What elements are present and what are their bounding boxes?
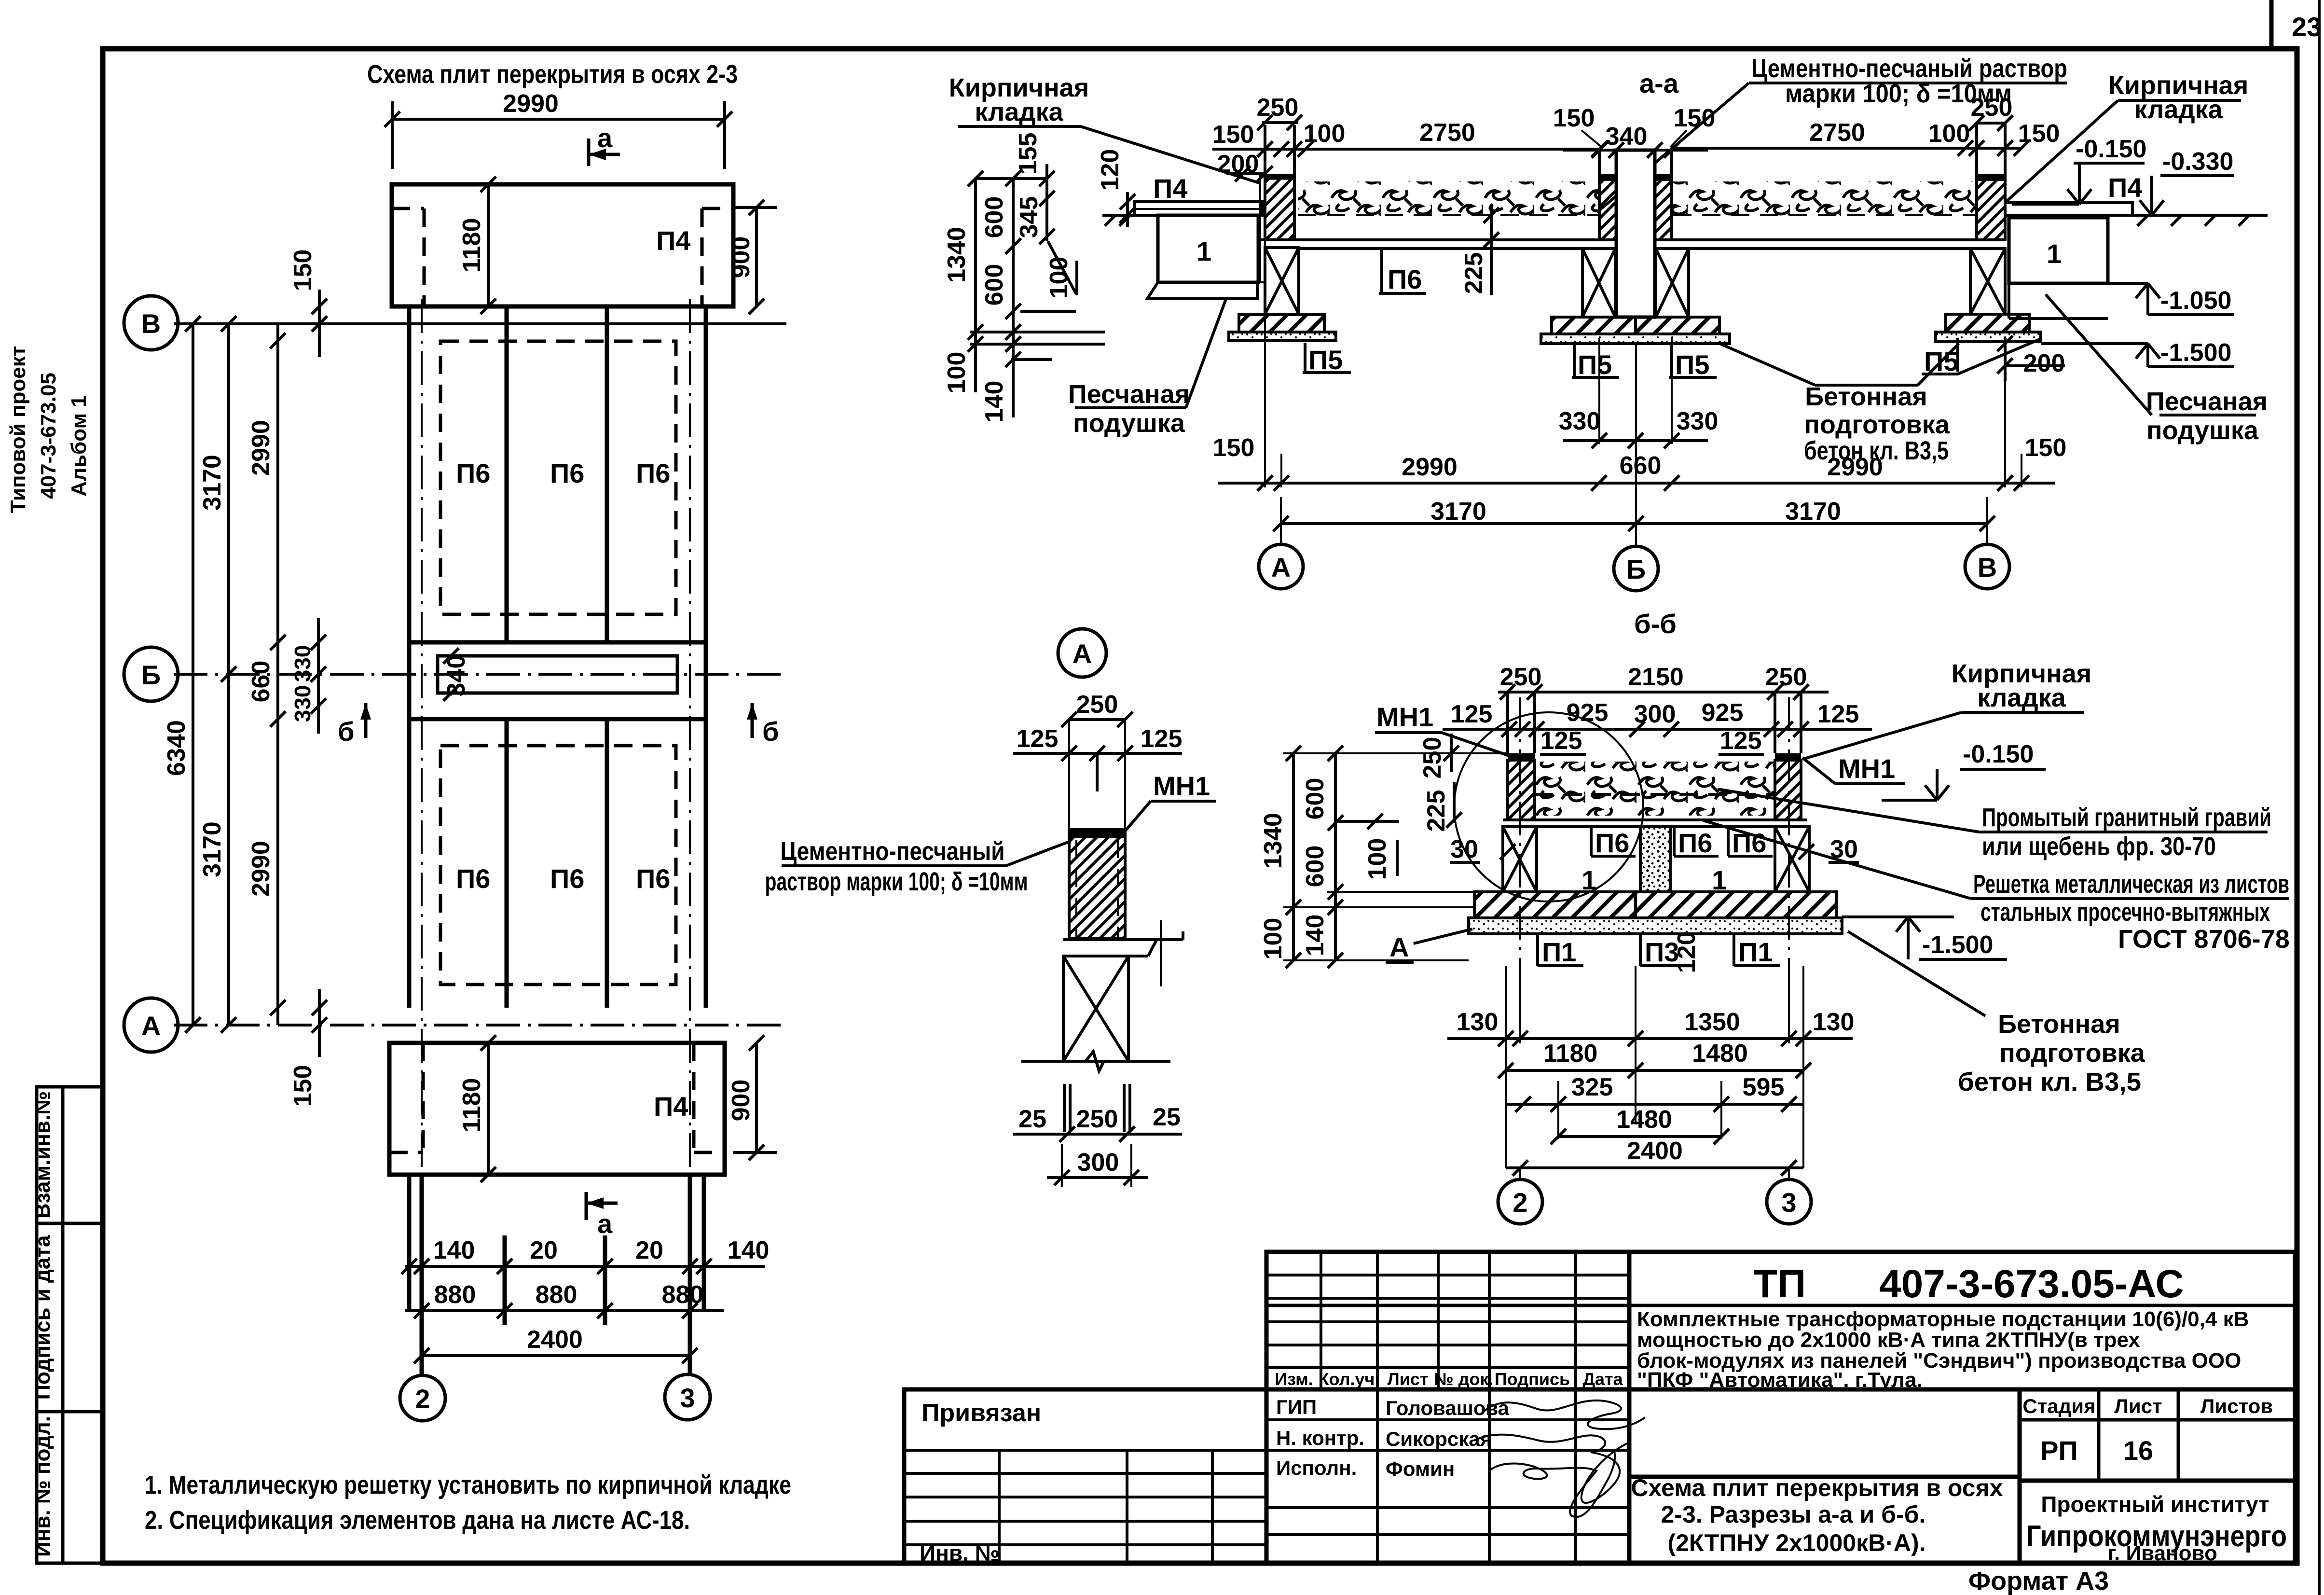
svg-text:Схема плит перекрытия в осях: Схема плит перекрытия в осях	[1631, 1474, 2003, 1501]
svg-text:Инв. № подл.: Инв. № подл.	[31, 1416, 55, 1557]
svg-text:ГИП: ГИП	[1276, 1396, 1317, 1418]
svg-text:900: 900	[727, 1080, 755, 1122]
svg-text:П6: П6	[1678, 828, 1712, 858]
svg-text:880: 880	[662, 1281, 704, 1309]
svg-text:1480: 1480	[1692, 1040, 1748, 1068]
svg-text:1180: 1180	[458, 218, 486, 273]
svg-text:подготовка: подготовка	[1804, 410, 1950, 439]
svg-text:23: 23	[2292, 12, 2322, 42]
svg-text:Цементно-песчаный: Цементно-песчаный	[781, 837, 1005, 866]
svg-text:2990: 2990	[1402, 453, 1458, 481]
svg-text:Взам.инв.№: Взам.инв.№	[31, 1091, 55, 1219]
svg-text:600: 600	[1301, 846, 1329, 888]
svg-text:Листов: Листов	[2200, 1395, 2273, 1417]
svg-text:а: а	[597, 1208, 613, 1239]
svg-text:2-3. Разрезы а-а и б-б.: 2-3. Разрезы а-а и б-б.	[1661, 1501, 1926, 1528]
svg-text:250: 250	[1257, 94, 1299, 122]
svg-text:2990: 2990	[247, 420, 275, 476]
svg-text:Схема плит перекрытия в осях 2: Схема плит перекрытия в осях 2-3	[367, 60, 738, 89]
svg-text:3170: 3170	[1430, 498, 1486, 526]
svg-text:140: 140	[433, 1236, 475, 1264]
svg-text:130: 130	[1813, 1008, 1855, 1036]
svg-text:П4: П4	[1153, 173, 1187, 204]
svg-text:МН1: МН1	[1153, 771, 1210, 801]
svg-text:подушка: подушка	[2146, 416, 2259, 445]
svg-text:А: А	[1389, 932, 1409, 962]
svg-text:250: 250	[1076, 691, 1118, 719]
svg-text:Решетка металлическая из листо: Решетка металлическая из листов	[1973, 870, 2289, 899]
svg-text:Проектный институт: Проектный институт	[2041, 1492, 2269, 1517]
svg-text:2400: 2400	[1627, 1137, 1683, 1165]
svg-text:30: 30	[1450, 835, 1478, 863]
svg-text:25: 25	[1018, 1105, 1046, 1133]
svg-text:-1.500: -1.500	[2160, 339, 2231, 367]
svg-text:Фомин: Фомин	[1386, 1457, 1455, 1480]
svg-text:600: 600	[980, 196, 1008, 238]
svg-text:П5: П5	[1308, 345, 1343, 375]
svg-text:325: 325	[1571, 1073, 1613, 1101]
svg-text:250: 250	[1076, 1105, 1118, 1133]
svg-text:подушка: подушка	[1073, 409, 1185, 438]
svg-text:МН1: МН1	[1376, 702, 1433, 732]
svg-text:250: 250	[1418, 737, 1446, 779]
svg-text:№ док.: № док.	[1434, 1369, 1494, 1389]
svg-text:1: 1	[2047, 238, 2062, 269]
svg-text:595: 595	[1743, 1073, 1785, 1101]
svg-text:А: А	[1271, 552, 1291, 583]
svg-text:6340: 6340	[163, 720, 191, 776]
svg-text:-0.150: -0.150	[2076, 135, 2146, 163]
svg-text:б-б: б-б	[1634, 609, 1677, 639]
svg-text:20: 20	[530, 1236, 558, 1264]
svg-text:П1: П1	[1738, 937, 1773, 967]
svg-text:-1.500: -1.500	[1922, 931, 1993, 959]
svg-text:140: 140	[1301, 915, 1329, 957]
svg-text:880: 880	[434, 1281, 476, 1309]
svg-text:330: 330	[290, 645, 315, 682]
svg-text:Головашова: Головашова	[1386, 1397, 1510, 1419]
svg-text:2990: 2990	[247, 841, 275, 897]
svg-text:а: а	[597, 123, 613, 153]
svg-text:А: А	[141, 1011, 161, 1041]
svg-text:330: 330	[290, 685, 315, 722]
svg-text:2400: 2400	[527, 1326, 583, 1354]
svg-text:1340: 1340	[943, 227, 971, 283]
svg-text:16: 16	[2123, 1435, 2153, 1466]
svg-text:Формат А3: Формат А3	[1968, 1567, 2109, 1595]
svg-text:150: 150	[289, 1065, 317, 1107]
svg-text:125: 125	[1540, 727, 1582, 755]
svg-text:ТП: ТП	[1753, 1262, 1806, 1306]
svg-text:П6: П6	[1388, 264, 1422, 294]
svg-text:330: 330	[1677, 407, 1719, 435]
svg-text:200: 200	[2023, 349, 2065, 377]
svg-text:Привязан: Привязан	[921, 1399, 1041, 1427]
svg-text:100: 100	[1045, 257, 1073, 299]
svg-text:250: 250	[1971, 94, 2013, 122]
svg-text:П5: П5	[1578, 349, 1612, 380]
svg-text:3170: 3170	[198, 455, 226, 511]
svg-text:П6: П6	[636, 458, 670, 488]
svg-text:стальных просечно-вытяжных: стальных просечно-вытяжных	[1980, 898, 2270, 927]
svg-text:Изм.: Изм.	[1275, 1369, 1313, 1389]
svg-text:1180: 1180	[458, 1078, 486, 1133]
svg-text:1350: 1350	[1684, 1008, 1740, 1036]
svg-text:П6: П6	[1595, 828, 1629, 858]
svg-text:П5: П5	[1675, 349, 1709, 380]
svg-text:бетон кл. В3,5: бетон кл. В3,5	[1958, 1068, 2141, 1096]
svg-text:660: 660	[247, 661, 275, 703]
svg-text:или щебень фр. 30-70: или щебень фр. 30-70	[1982, 832, 2216, 861]
svg-text:Цементно-песчаный раствор: Цементно-песчаный раствор	[1751, 54, 2067, 83]
svg-text:925: 925	[1702, 699, 1744, 727]
svg-text:Подпись и дата: Подпись и дата	[31, 1235, 55, 1400]
svg-text:"ПКФ "Автоматика", г.Тула.: "ПКФ "Автоматика", г.Тула.	[1637, 1368, 1923, 1392]
svg-text:2150: 2150	[1628, 663, 1684, 691]
svg-text:225: 225	[1460, 252, 1488, 294]
svg-text:Исполн.: Исполн.	[1276, 1456, 1357, 1479]
svg-text:кладка: кладка	[975, 97, 1063, 126]
svg-text:125: 125	[1141, 725, 1183, 753]
svg-text:б: б	[762, 716, 779, 747]
svg-text:100: 100	[1259, 918, 1287, 960]
svg-text:100: 100	[1363, 838, 1391, 880]
svg-text:407-3-673.05-АС: 407-3-673.05-АС	[1879, 1262, 2184, 1306]
svg-text:2750: 2750	[1809, 119, 1865, 147]
svg-text:Кол.уч.: Кол.уч.	[1319, 1369, 1380, 1389]
svg-text:2. Спецификация элементов дана: 2. Спецификация элементов дана на листе …	[145, 1506, 690, 1535]
svg-text:1. Металлическую решетку устан: 1. Металлическую решетку установить по к…	[145, 1470, 791, 1499]
svg-text:2: 2	[1513, 1187, 1527, 1218]
svg-text:П6: П6	[636, 863, 670, 894]
svg-text:300: 300	[1077, 1149, 1119, 1177]
svg-text:660: 660	[1620, 452, 1662, 480]
svg-text:раствор марки 100; δ =10мм: раствор марки 100; δ =10мм	[765, 867, 1028, 896]
svg-text:П6: П6	[456, 863, 490, 894]
svg-text:-1.050: -1.050	[2160, 287, 2231, 315]
svg-text:150: 150	[289, 250, 317, 291]
svg-text:1: 1	[1196, 236, 1211, 266]
svg-text:150: 150	[2025, 434, 2067, 462]
svg-text:330: 330	[1559, 407, 1601, 435]
svg-text:130: 130	[1457, 1008, 1499, 1036]
svg-text:П4: П4	[654, 1091, 688, 1122]
svg-text:300: 300	[1634, 700, 1676, 728]
svg-text:Б: Б	[1626, 554, 1646, 584]
svg-text:Песчаная: Песчаная	[1068, 380, 1190, 409]
svg-text:П6: П6	[550, 458, 584, 488]
svg-text:600: 600	[1301, 778, 1329, 820]
svg-text:2990: 2990	[503, 90, 559, 118]
svg-text:900: 900	[727, 236, 755, 278]
svg-text:-0.150: -0.150	[1963, 740, 2034, 768]
svg-text:20: 20	[635, 1236, 663, 1264]
svg-text:1340: 1340	[1259, 813, 1287, 869]
svg-text:Комплектные трансформаторные п: Комплектные трансформаторные подстанции …	[1637, 1307, 2249, 1331]
svg-text:1180: 1180	[1543, 1040, 1598, 1068]
svg-text:250: 250	[1500, 663, 1542, 691]
svg-text:3170: 3170	[1785, 498, 1841, 526]
svg-text:кладка: кладка	[1977, 683, 2066, 712]
svg-text:Инв. №: Инв. №	[920, 1540, 1000, 1566]
svg-text:П4: П4	[656, 225, 690, 256]
svg-text:600: 600	[980, 264, 1008, 306]
svg-text:П6: П6	[1732, 828, 1766, 858]
svg-text:2: 2	[415, 1384, 430, 1414]
svg-text:155: 155	[1014, 133, 1042, 175]
svg-text:П6: П6	[550, 863, 584, 894]
svg-text:25: 25	[1153, 1103, 1181, 1131]
svg-text:225: 225	[1422, 790, 1450, 832]
svg-text:1480: 1480	[1616, 1106, 1672, 1134]
svg-text:П6: П6	[456, 458, 490, 488]
svg-text:В: В	[141, 308, 161, 339]
svg-text:120: 120	[1096, 149, 1124, 191]
svg-text:Дата: Дата	[1582, 1369, 1623, 1389]
svg-text:3: 3	[680, 1383, 695, 1413]
svg-text:подготовка: подготовка	[1999, 1039, 2145, 1068]
svg-text:б: б	[338, 716, 355, 747]
svg-text:П1: П1	[1542, 937, 1576, 967]
svg-text:125: 125	[1720, 727, 1762, 755]
svg-text:Б: Б	[141, 660, 161, 690]
svg-text:П4: П4	[2108, 172, 2142, 203]
svg-text:Лист: Лист	[1387, 1369, 1428, 1389]
svg-text:407-3-673.05: 407-3-673.05	[37, 373, 60, 499]
svg-text:925: 925	[1567, 699, 1609, 727]
svg-text:(2КТПНУ 2х1000кВ·А).: (2КТПНУ 2х1000кВ·А).	[1667, 1529, 1925, 1556]
svg-text:Типовой проект: Типовой проект	[6, 346, 30, 513]
svg-text:100: 100	[1304, 120, 1346, 148]
svg-text:3: 3	[1781, 1187, 1796, 1218]
svg-text:Альбом 1: Альбом 1	[67, 395, 91, 497]
svg-text:МН1: МН1	[1838, 753, 1895, 784]
svg-text:100: 100	[1928, 120, 1970, 148]
svg-text:Лист: Лист	[2114, 1395, 2162, 1417]
svg-text:А: А	[1073, 638, 1092, 669]
svg-text:РП: РП	[2040, 1435, 2078, 1466]
svg-text:мощностью до 2х1000 кВ·А типа: мощностью до 2х1000 кВ·А типа 2КТПНУ(в т…	[1637, 1328, 2140, 1352]
svg-text:150: 150	[1553, 104, 1595, 132]
svg-text:Промытый гранитный гравий: Промытый гранитный гравий	[1982, 803, 2271, 832]
svg-text:Подпись: Подпись	[1495, 1369, 1570, 1389]
svg-text:г. Иваново: г. Иваново	[2107, 1541, 2217, 1565]
svg-text:100: 100	[943, 352, 971, 394]
svg-text:2990: 2990	[1827, 453, 1883, 481]
svg-text:2750: 2750	[1419, 119, 1475, 147]
svg-text:150: 150	[2018, 120, 2060, 148]
svg-text:120: 120	[1673, 931, 1701, 973]
svg-text:Бетонная: Бетонная	[1998, 1010, 2120, 1039]
svg-text:ГОСТ 8706-78: ГОСТ 8706-78	[2118, 925, 2290, 954]
svg-text:150: 150	[1213, 434, 1255, 462]
svg-text:125: 125	[1451, 700, 1493, 728]
svg-text:3170: 3170	[198, 821, 226, 877]
svg-text:880: 880	[536, 1281, 578, 1309]
svg-text:125: 125	[1817, 700, 1859, 728]
svg-text:340: 340	[1606, 123, 1648, 151]
svg-text:150: 150	[1212, 121, 1254, 149]
svg-text:140: 140	[980, 381, 1008, 423]
svg-text:а-а: а-а	[1639, 68, 1679, 98]
svg-text:345: 345	[1015, 196, 1043, 238]
svg-text:В: В	[1978, 552, 1997, 583]
svg-text:150: 150	[1674, 104, 1716, 132]
svg-text:140: 140	[728, 1236, 770, 1264]
svg-text:Песчаная: Песчаная	[2146, 387, 2268, 416]
svg-text:200: 200	[1217, 150, 1259, 178]
svg-text:Н. контр.: Н. контр.	[1276, 1427, 1364, 1449]
svg-text:125: 125	[1017, 725, 1059, 753]
svg-text:-0.330: -0.330	[2162, 148, 2233, 176]
svg-text:250: 250	[1765, 663, 1807, 691]
svg-text:Стадия: Стадия	[2022, 1395, 2095, 1417]
